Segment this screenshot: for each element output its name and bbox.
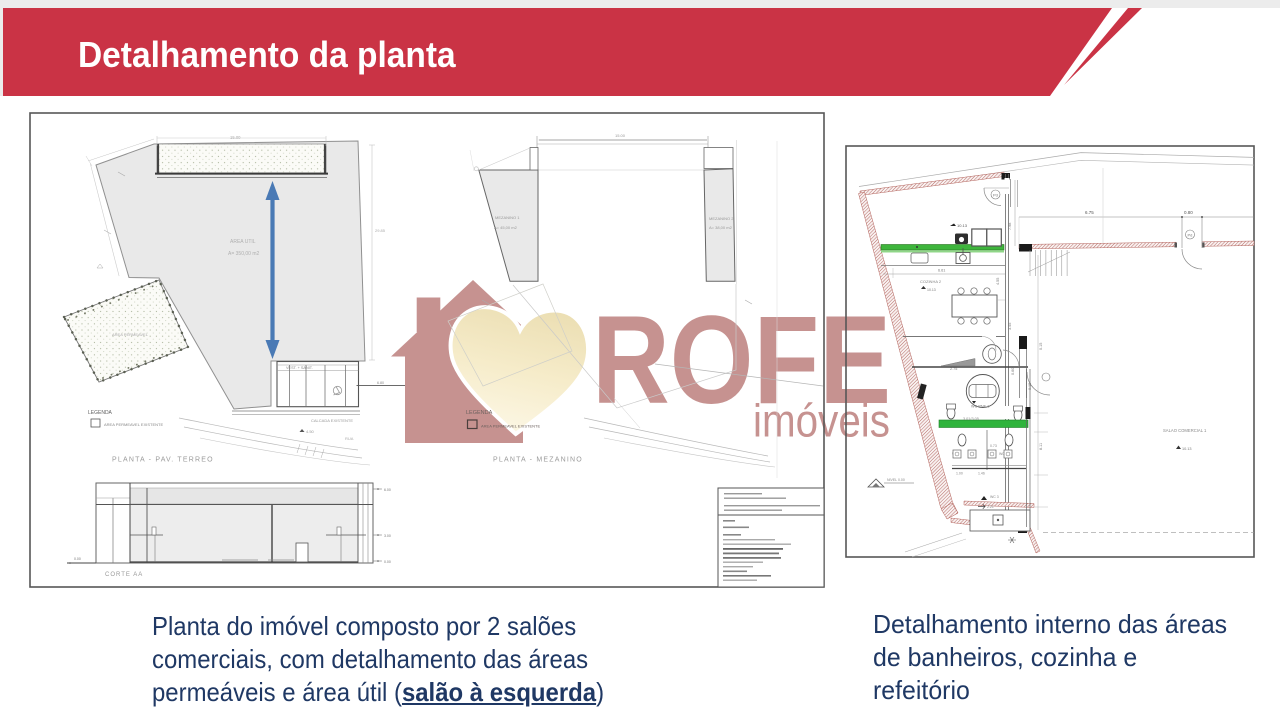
svg-text:AREA PERMEAVEL EXISTENTE: AREA PERMEAVEL EXISTENTE (104, 422, 163, 427)
svg-text:CALCADA EXISTENTE: CALCADA EXISTENTE (311, 418, 353, 423)
svg-text:8.11: 8.11 (1039, 443, 1043, 450)
svg-text:MEZANINO 2: MEZANINO 2 (709, 216, 734, 221)
svg-text:0.15: 0.15 (1028, 383, 1032, 390)
svg-text:15.00: 15.00 (615, 133, 626, 138)
svg-text:6.80: 6.80 (377, 381, 384, 385)
svg-text:AREA PERMEAVEL EXISTENTE: AREA PERMEAVEL EXISTENTE (481, 424, 540, 429)
svg-text:PLANTA - MEZANINO: PLANTA - MEZANINO (493, 457, 583, 464)
svg-text:0.80: 0.80 (1184, 210, 1193, 215)
svg-text:AREA UTIL: AREA UTIL (230, 239, 256, 245)
svg-text:Pd: Pd (1188, 233, 1193, 238)
svg-text:0.00: 0.00 (384, 560, 391, 564)
svg-text:RUA: RUA (345, 436, 354, 441)
svg-text:1.00: 1.00 (956, 472, 963, 476)
svg-text:6.61: 6.61 (938, 269, 945, 273)
svg-text:A= 45,00 m2: A= 45,00 m2 (494, 225, 518, 230)
svg-text:29.85: 29.85 (375, 228, 386, 233)
svg-text:CORTE AA: CORTE AA (105, 572, 143, 578)
svg-text:LEGENDA: LEGENDA (88, 410, 113, 416)
svg-text:15.00: 15.00 (230, 135, 241, 140)
svg-text:3.00: 3.00 (384, 534, 391, 538)
svg-text:10.13: 10.13 (927, 288, 936, 292)
svg-text:SALAO COMERCIAL 1: SALAO COMERCIAL 1 (1163, 428, 1207, 433)
svg-text:WC 3: WC 3 (990, 495, 999, 499)
svg-text:0.15: 0.15 (1039, 343, 1043, 350)
svg-text:6.00: 6.00 (384, 488, 391, 492)
svg-text:4.50: 4.50 (306, 429, 315, 434)
svg-text:A= 350,00 m2: A= 350,00 m2 (228, 251, 259, 257)
svg-text:10.13: 10.13 (1182, 447, 1192, 451)
svg-text:3.01/3.05: 3.01/3.05 (963, 417, 979, 421)
svg-text:LEGENDA: LEGENDA (466, 410, 493, 416)
svg-text:0.73: 0.73 (990, 444, 997, 448)
svg-text:AREA PERMEAVEL: AREA PERMEAVEL (112, 332, 149, 337)
svg-text:6.75: 6.75 (1085, 210, 1094, 215)
svg-text:2.21: 2.21 (987, 505, 994, 509)
svg-text:imóveis: imóveis (753, 395, 890, 447)
svg-text:4.55: 4.55 (996, 278, 1000, 285)
svg-text:1.46: 1.46 (978, 472, 985, 476)
svg-text:A= 38,00 m2: A= 38,00 m2 (709, 225, 733, 230)
svg-text:PLANTA - PAV. TERREO: PLANTA - PAV. TERREO (112, 457, 214, 464)
svg-text:2.75: 2.75 (950, 367, 957, 371)
svg-text:3.45: 3.45 (1008, 323, 1012, 330)
svg-text:WC PNE 1: WC PNE 1 (971, 405, 989, 409)
svg-text:0.60: 0.60 (1011, 368, 1015, 375)
svg-text:0.00: 0.00 (74, 557, 81, 561)
svg-text:10.13: 10.13 (957, 223, 968, 228)
svg-text:7.98: 7.98 (1008, 223, 1012, 230)
svg-text:NIVEL 0.00: NIVEL 0.00 (887, 478, 905, 482)
svg-text:Pd: Pd (993, 193, 998, 198)
svg-text:COZINHA 2: COZINHA 2 (920, 279, 942, 284)
svg-text:MEZANINO 1: MEZANINO 1 (495, 215, 520, 220)
svg-text:VEST. + SANIT.: VEST. + SANIT. (286, 366, 313, 370)
